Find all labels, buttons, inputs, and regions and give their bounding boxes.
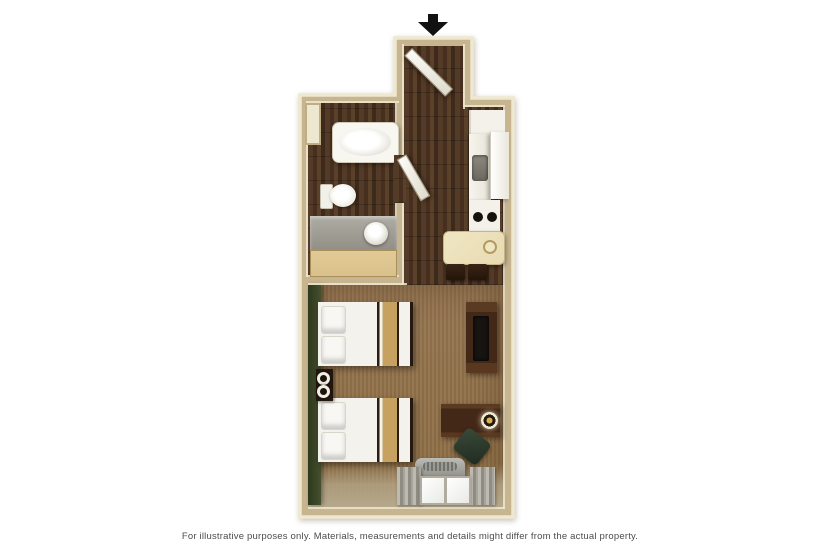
pillow	[321, 402, 346, 430]
vanity-cabinet	[310, 250, 397, 277]
vanity-sink	[364, 222, 388, 245]
toilet-bowl	[330, 184, 356, 207]
desk-lamp	[481, 412, 498, 429]
wall-edge	[463, 105, 505, 107]
wall-edge	[463, 44, 465, 109]
wall-edge	[308, 507, 505, 509]
cooktop	[469, 200, 500, 233]
pillow	[321, 306, 346, 334]
caption: For illustrative purposes only. Material…	[0, 531, 820, 542]
hvac-unit	[415, 458, 465, 478]
pillow	[321, 336, 346, 364]
refrigerator	[490, 132, 509, 199]
table-bowl	[483, 240, 497, 254]
bathtub-basin	[339, 128, 391, 156]
lamp	[317, 372, 330, 385]
bed-1	[318, 302, 413, 366]
window-pane	[422, 478, 444, 503]
kitchen-sink	[472, 155, 488, 181]
burner	[487, 212, 497, 222]
pillow	[321, 432, 346, 460]
lamp	[317, 385, 330, 398]
kitchen-counter	[469, 110, 505, 134]
window	[420, 476, 471, 505]
curtain-right	[470, 467, 495, 505]
tv-stand	[466, 302, 497, 373]
closet-shelf	[305, 103, 321, 145]
bathtub	[332, 122, 399, 163]
wall-edge	[308, 283, 407, 285]
television	[473, 316, 489, 361]
dining-chair	[468, 264, 487, 280]
window-pane	[447, 478, 469, 503]
hvac-grill	[423, 462, 457, 471]
burner	[473, 212, 483, 222]
curtain-left	[397, 467, 421, 505]
floor-plan: For illustrative purposes only. Material…	[0, 0, 820, 560]
dining-chair	[446, 264, 465, 280]
bed-2	[318, 398, 413, 462]
dining-table	[443, 231, 505, 265]
